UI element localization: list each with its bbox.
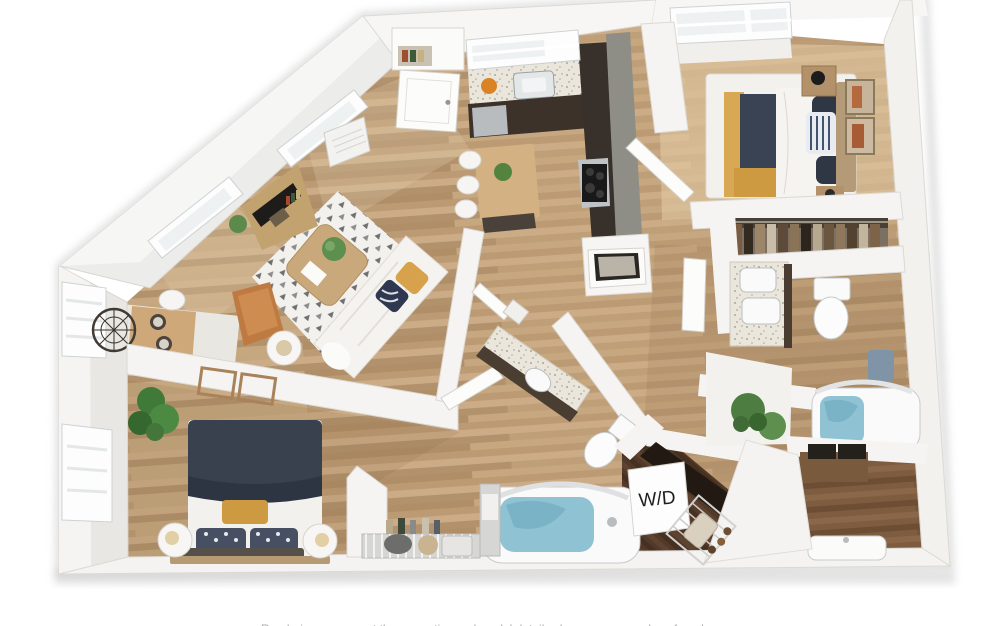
svg-text:W/D: W/D — [638, 487, 677, 511]
